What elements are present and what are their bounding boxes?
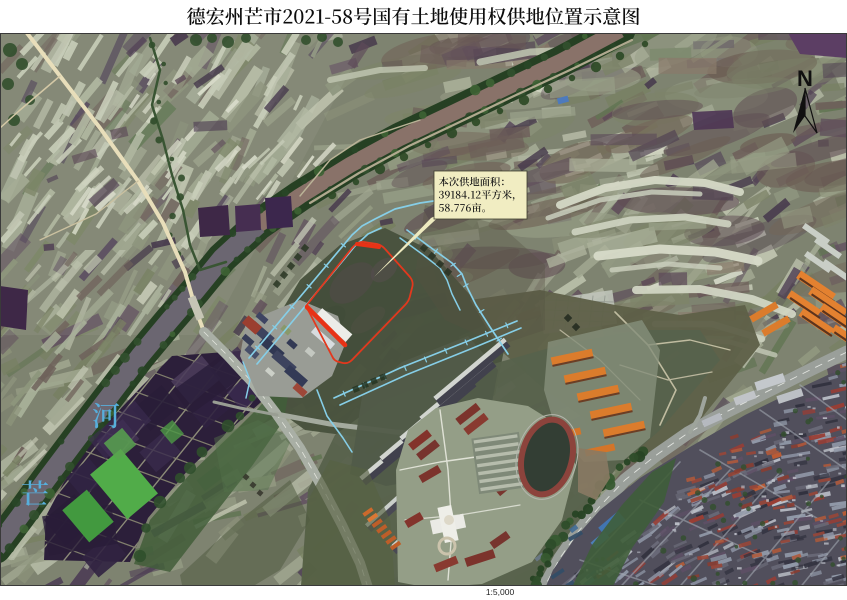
svg-text:1:5,000: 1:5,000 — [486, 587, 515, 597]
